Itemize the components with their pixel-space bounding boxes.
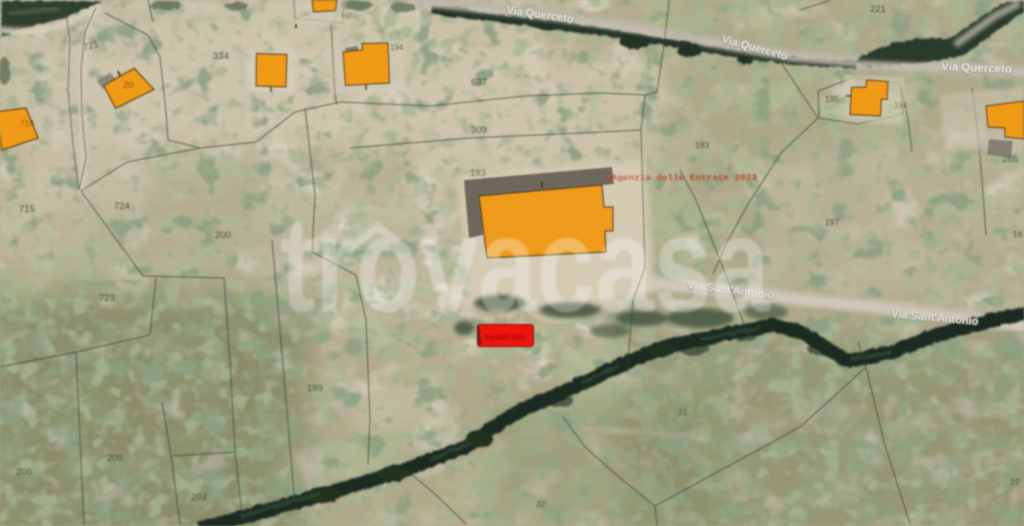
svg-text:206: 206 xyxy=(16,467,32,478)
svg-text:195: 195 xyxy=(825,94,839,104)
svg-text:trovacasa: trovacasa xyxy=(280,188,771,340)
svg-text:193: 193 xyxy=(470,168,486,179)
svg-text:192: 192 xyxy=(300,11,311,18)
svg-text:197: 197 xyxy=(825,217,839,227)
svg-text:718: 718 xyxy=(20,118,34,128)
svg-text:637: 637 xyxy=(471,77,487,88)
svg-text:199: 199 xyxy=(307,383,323,394)
svg-text:20: 20 xyxy=(123,80,134,91)
svg-text:194: 194 xyxy=(390,43,404,52)
svg-text:202: 202 xyxy=(191,492,207,503)
svg-text:Via Querceto: Via Querceto xyxy=(941,61,1012,75)
svg-text:32: 32 xyxy=(536,499,546,509)
svg-text:31: 31 xyxy=(678,407,688,417)
svg-text:221: 221 xyxy=(870,4,886,15)
svg-text:610: 610 xyxy=(341,12,352,19)
svg-text:©Agenzia delle Entrate 2023: ©Agenzia delle Entrate 2023 xyxy=(606,173,757,183)
svg-text:309: 309 xyxy=(471,125,487,136)
svg-text:715: 715 xyxy=(19,204,35,215)
svg-text:205: 205 xyxy=(107,453,123,464)
svg-text:194: 194 xyxy=(894,101,908,110)
svg-text:16: 16 xyxy=(1013,229,1023,239)
svg-text:285: 285 xyxy=(1002,154,1018,165)
svg-text:724: 724 xyxy=(114,201,130,212)
svg-text:200: 200 xyxy=(215,230,231,241)
svg-text:723: 723 xyxy=(99,293,115,304)
svg-text:27: 27 xyxy=(1010,477,1020,487)
svg-text:334: 334 xyxy=(213,51,229,62)
svg-text:183: 183 xyxy=(695,140,709,150)
